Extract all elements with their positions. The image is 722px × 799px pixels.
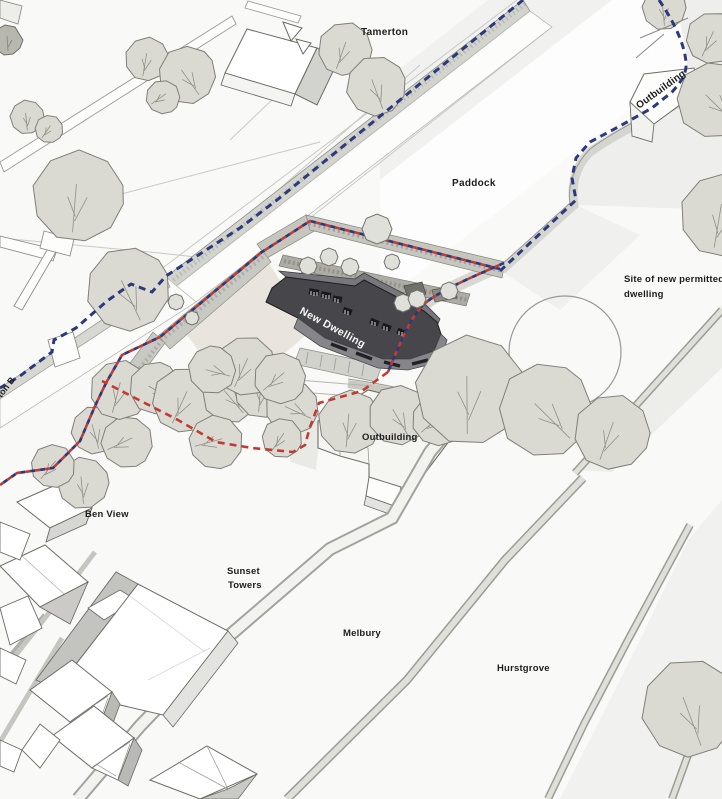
svg-text:Site of new permitted: Site of new permitted — [624, 274, 722, 285]
svg-text:Sunset: Sunset — [227, 566, 261, 577]
svg-text:Towers: Towers — [228, 580, 262, 591]
svg-text:dwelling: dwelling — [624, 289, 664, 300]
svg-text:Tamerton: Tamerton — [361, 27, 408, 38]
svg-text:Hurstgrove: Hurstgrove — [497, 663, 550, 674]
svg-text:Outbuilding: Outbuilding — [362, 432, 418, 443]
svg-text:Melbury: Melbury — [343, 628, 381, 639]
svg-text:Ben View: Ben View — [85, 509, 129, 520]
svg-text:Paddock: Paddock — [452, 178, 496, 189]
